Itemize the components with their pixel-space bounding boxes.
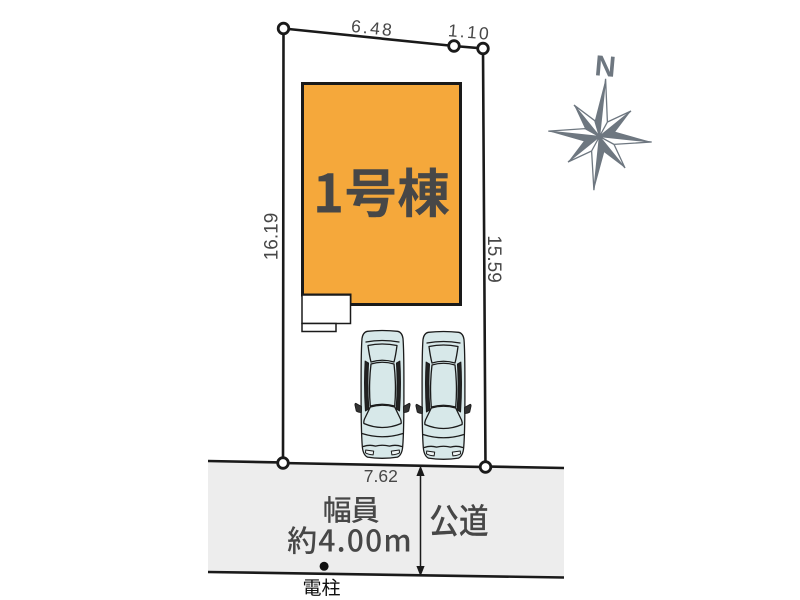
svg-text:15.59: 15.59	[483, 235, 504, 283]
svg-text:1.10: 1.10	[447, 20, 491, 44]
svg-text:7.62: 7.62	[364, 466, 398, 486]
svg-text:16.19: 16.19	[262, 213, 283, 261]
